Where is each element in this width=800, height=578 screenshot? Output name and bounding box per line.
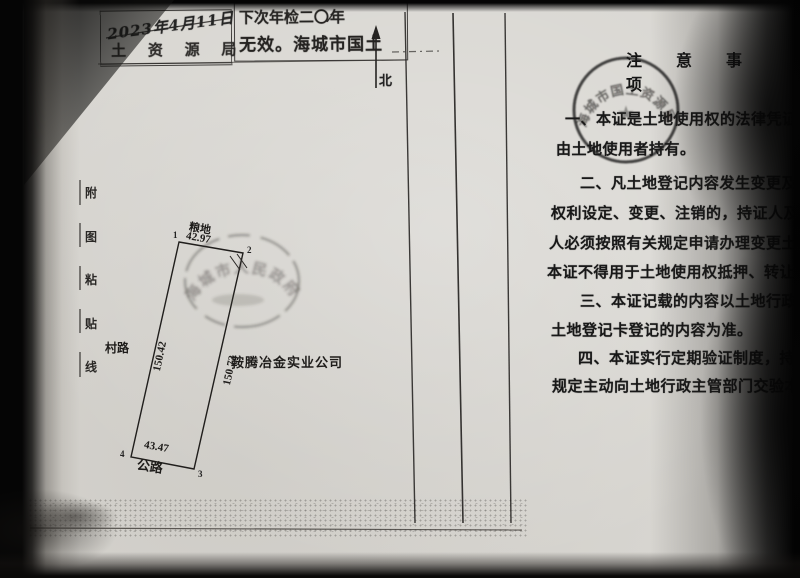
scanned-land-certificate-page: 2023年4月11日 土 资 源 局 下次年检二〇⁄⁄年 无效。海城市国土 北 … — [0, 0, 800, 578]
round-stamps-layer: ★ 海城市国土资源局 海城市人民政府 — [0, 0, 800, 578]
round-stamp-parcel: 海城市人民政府 — [182, 235, 304, 327]
stamp-star-icon: ★ — [617, 103, 635, 125]
round-stamp-notice: ★ 海城市国土资源局 — [574, 58, 679, 162]
